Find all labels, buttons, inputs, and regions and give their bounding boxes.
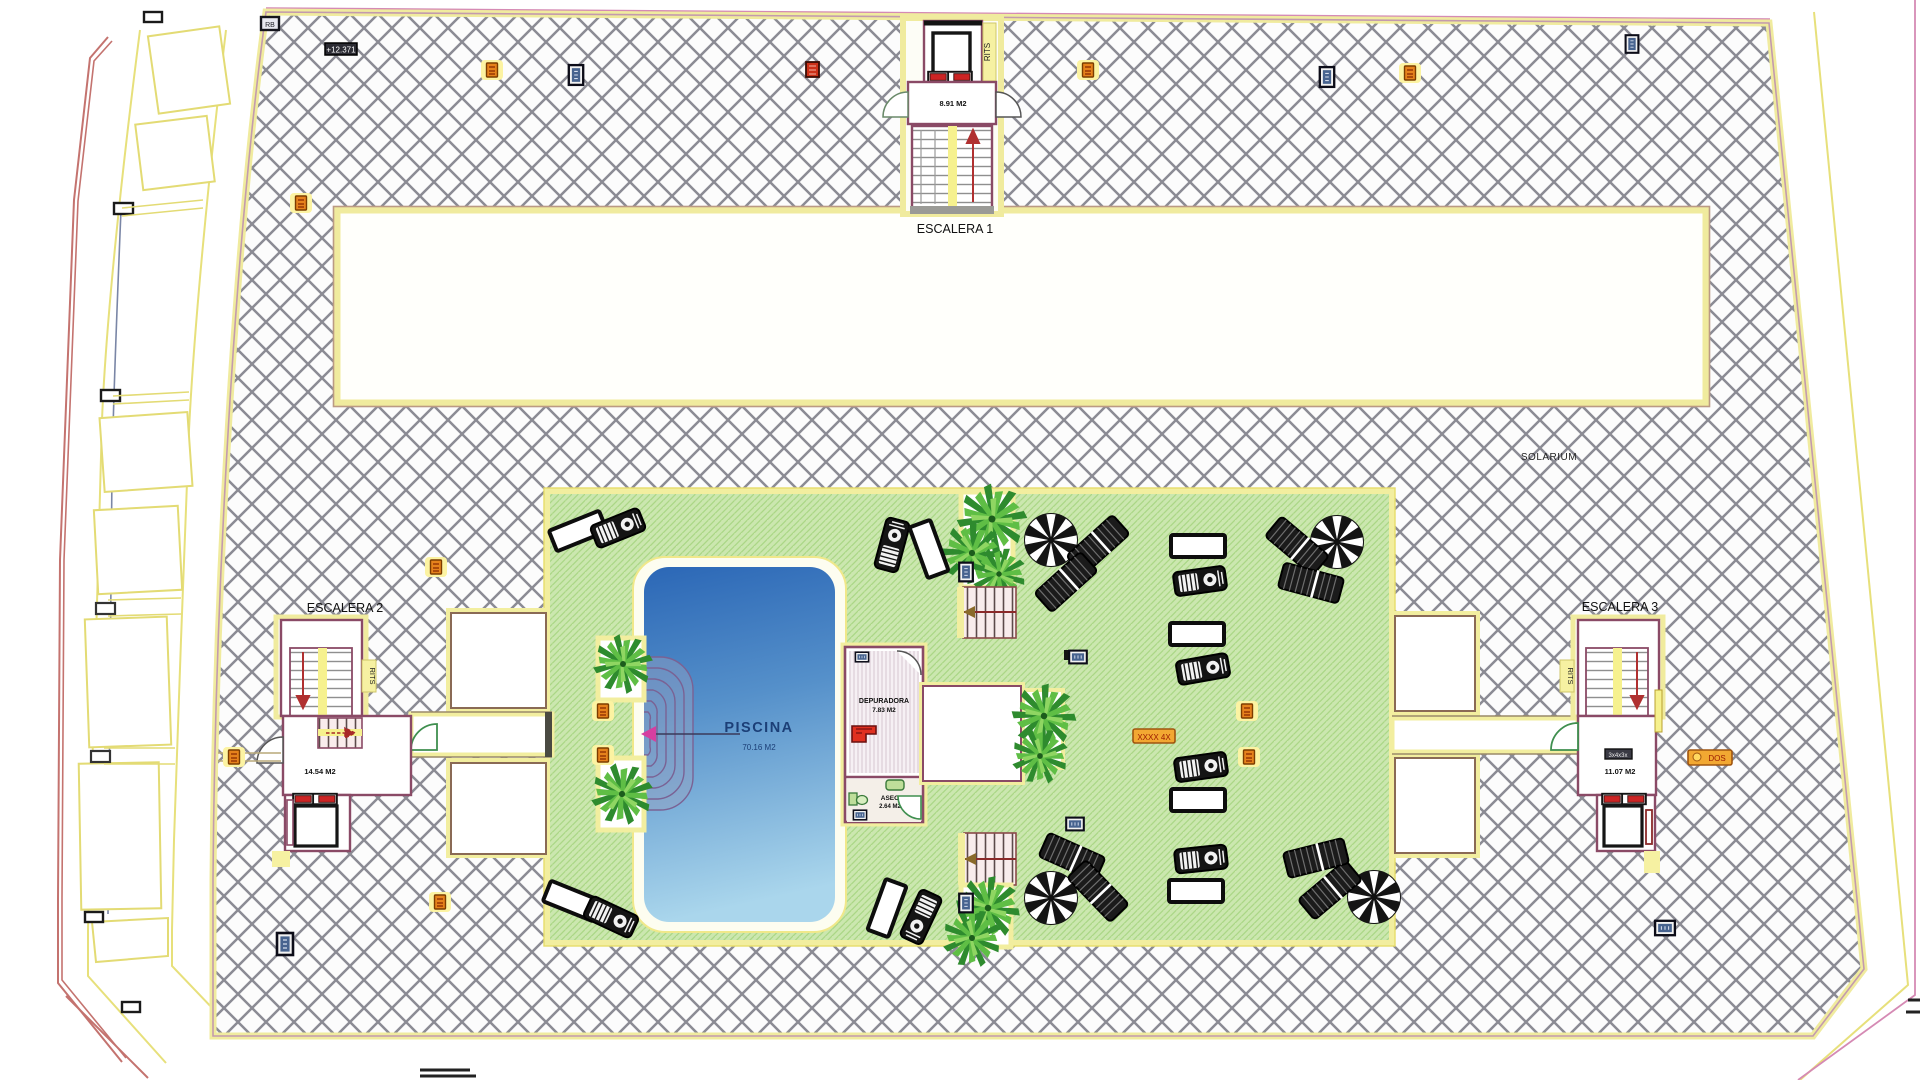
- svg-text:RITS: RITS: [1566, 667, 1575, 684]
- svg-text:DOS: DOS: [1708, 754, 1725, 763]
- svg-text:14.54 M2: 14.54 M2: [304, 767, 335, 776]
- svg-text:ESCALERA 1: ESCALERA 1: [917, 222, 993, 236]
- svg-text:ASEO: ASEO: [881, 795, 899, 802]
- svg-text:DEPURADORA: DEPURADORA: [859, 698, 909, 705]
- svg-text:8.91 M2: 8.91 M2: [939, 99, 966, 108]
- svg-text:RITS: RITS: [983, 43, 992, 61]
- svg-text:2.64 M2: 2.64 M2: [879, 804, 901, 810]
- svg-text:3x4x3x: 3x4x3x: [1608, 753, 1627, 759]
- svg-text:XXXX 4X: XXXX 4X: [1137, 733, 1171, 742]
- svg-text:11.07 M2: 11.07 M2: [1605, 767, 1636, 776]
- svg-text:70.16 M2: 70.16 M2: [742, 743, 776, 752]
- svg-text:PISCINA: PISCINA: [724, 720, 793, 736]
- svg-text:ESCALERA 2: ESCALERA 2: [307, 601, 383, 615]
- svg-text:+12.371: +12.371: [326, 46, 356, 55]
- svg-text:7.83 M2: 7.83 M2: [872, 707, 896, 714]
- svg-text:RITS: RITS: [368, 667, 377, 684]
- svg-text:SOLARIUM: SOLARIUM: [1521, 452, 1577, 463]
- svg-text:ESCALERA 3: ESCALERA 3: [1582, 600, 1658, 614]
- svg-text:RB: RB: [265, 22, 275, 29]
